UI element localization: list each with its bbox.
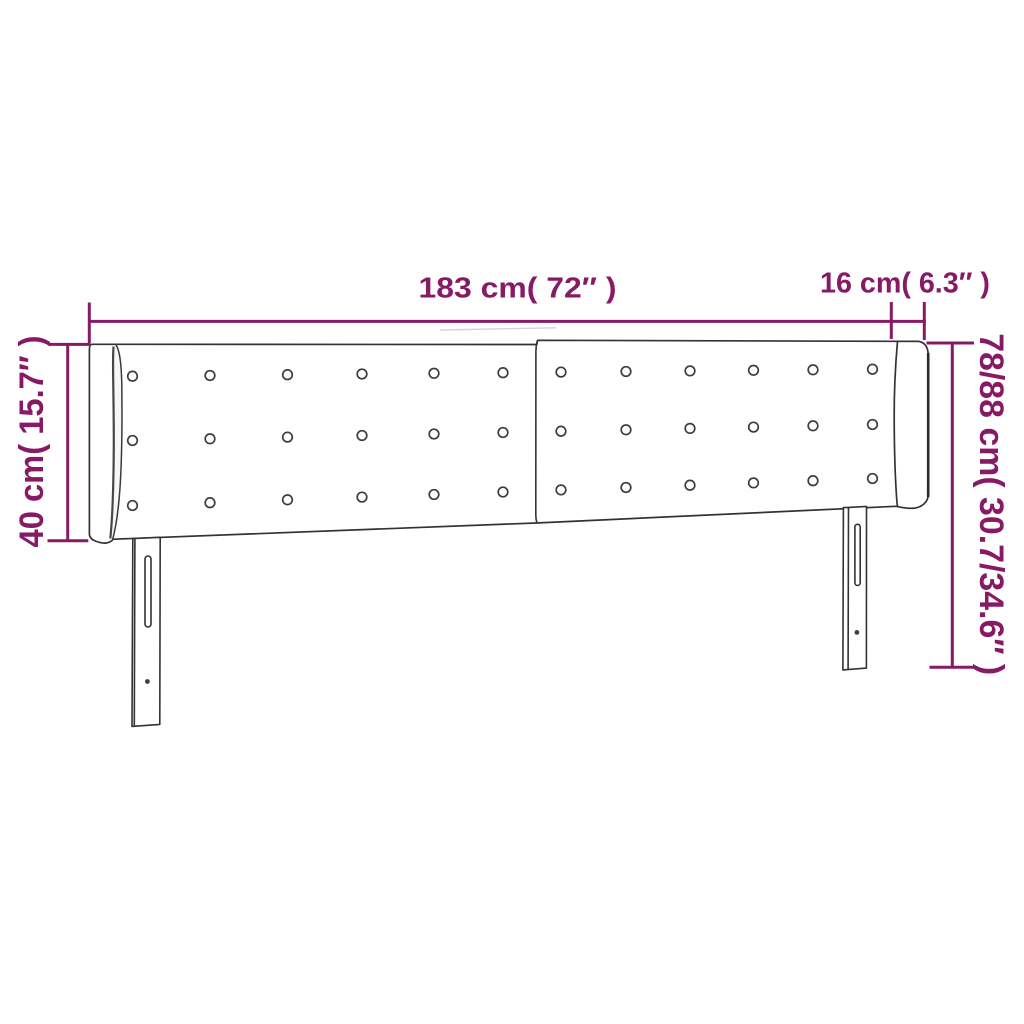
svg-text:78/88 cm( 30.7/34.6″ ): 78/88 cm( 30.7/34.6″ ) — [972, 333, 1010, 675]
svg-text:16 cm( 6.3″ ): 16 cm( 6.3″ ) — [820, 268, 990, 300]
svg-text:183 cm( 72″ ): 183 cm( 72″ ) — [419, 273, 617, 305]
svg-text:40 cm( 15.7″ ): 40 cm( 15.7″ ) — [13, 336, 51, 548]
